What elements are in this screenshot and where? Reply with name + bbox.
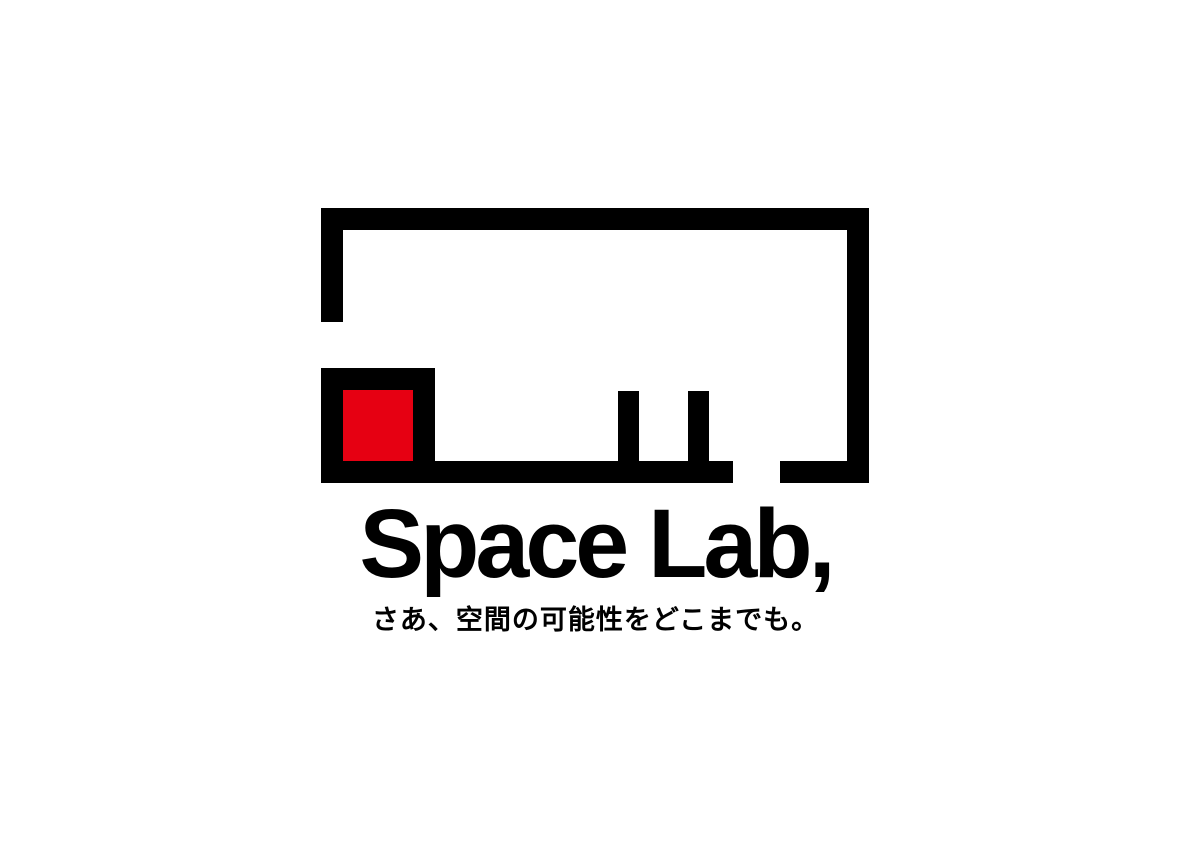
mark-red-accent-square [343,390,413,461]
mark-bottom-wall-right [780,461,869,483]
mark-table-leg-left-icon [618,391,639,461]
mark-bottom-wall-left [321,461,733,483]
mark-inner-room-right-wall [413,368,435,483]
mark-table-leg-right-icon [688,391,709,461]
mark-left-wall [321,208,343,322]
mark-right-wall [847,208,869,483]
brand-name: Space Lab, [0,495,1191,592]
mark-inner-room-left-wall [321,368,343,483]
logo-page: Space Lab, さあ、空間の可能性をどこまでも。 [0,0,1191,842]
floor-plan-logo-mark-icon [321,208,869,483]
mark-top-wall [321,208,869,230]
brand-tagline: さあ、空間の可能性をどこまでも。 [0,604,1191,636]
